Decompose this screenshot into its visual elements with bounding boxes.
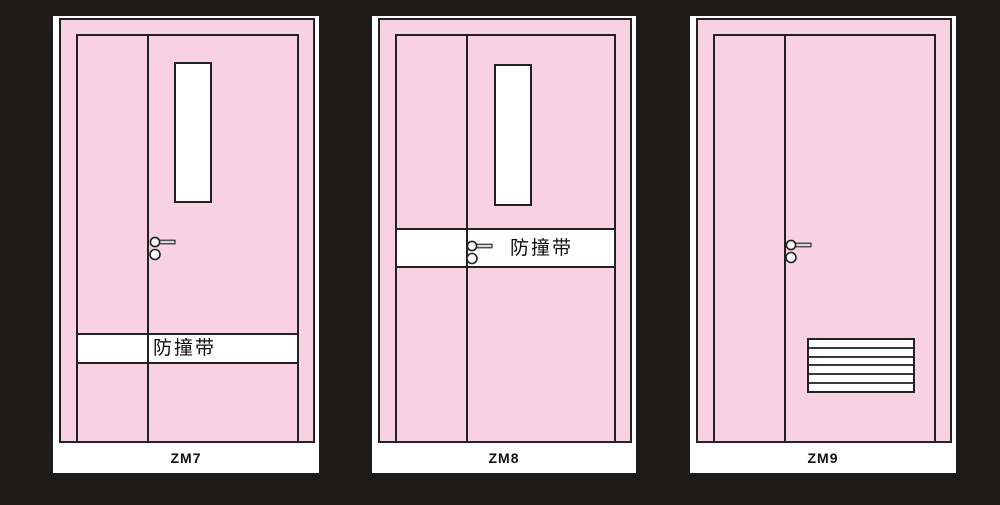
louver-slat	[809, 349, 913, 358]
door-frame: 防撞带	[378, 18, 632, 443]
louver-slat	[809, 366, 913, 375]
door-frame	[696, 18, 952, 443]
door-code-label: ZM7	[53, 443, 319, 473]
vision-window	[494, 64, 532, 206]
lever-handle-icon	[146, 233, 182, 263]
door-code-label: ZM9	[690, 443, 956, 473]
louver-slat	[809, 384, 913, 391]
door-leaves: 防撞带	[395, 34, 616, 441]
door-leaves: 防撞带	[76, 34, 299, 441]
impact-strip: 防撞带	[397, 228, 614, 268]
door-drawing-zm7: 防撞带 ZM7	[53, 16, 319, 473]
louver-vent	[807, 338, 915, 393]
lever-handle-icon	[782, 236, 818, 266]
door-drawing-zm8: 防撞带 ZM8	[372, 16, 636, 473]
louver-slat	[809, 375, 913, 384]
door-leaves	[713, 34, 936, 441]
vision-window	[174, 62, 212, 203]
louver-slat	[809, 340, 913, 349]
impact-strip-label: 防撞带	[510, 239, 573, 258]
lever-handle-icon	[463, 237, 499, 267]
door-frame: 防撞带	[59, 18, 315, 443]
door-code-label: ZM8	[372, 443, 636, 473]
door-drawing-zm9: ZM9	[690, 16, 956, 473]
impact-strip-label: 防撞带	[153, 339, 216, 358]
louver-slat	[809, 358, 913, 367]
impact-strip: 防撞带	[78, 333, 297, 364]
